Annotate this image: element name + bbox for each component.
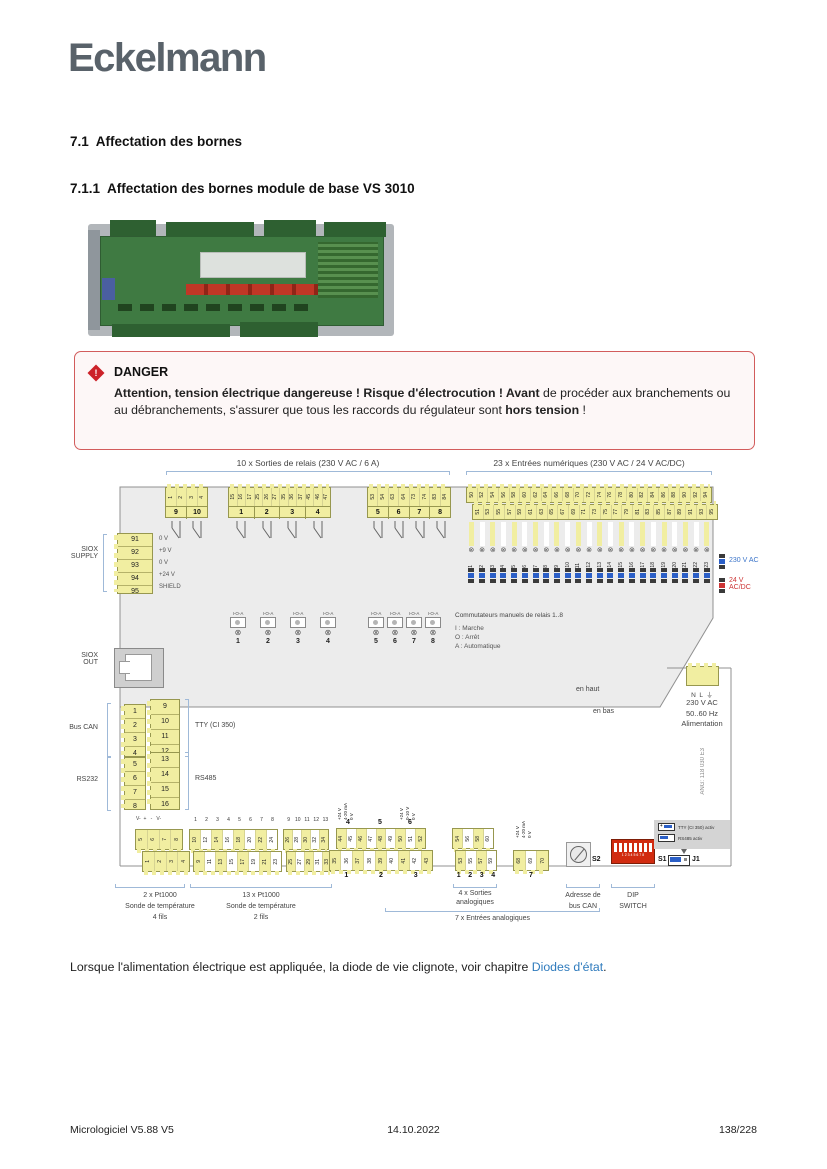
- terminal-number: 53: [485, 509, 491, 515]
- terminal-number: 80: [629, 492, 635, 498]
- relay-manual-switch: I-O-A ⊗ 6: [387, 611, 403, 645]
- output-number: 2: [465, 872, 477, 879]
- housing-left-cap: [88, 230, 100, 330]
- relay-manual-switch: I-O-A ⊗ 2: [260, 611, 276, 645]
- switch-number: 2: [266, 638, 270, 645]
- terminal-number: 28: [294, 837, 300, 843]
- terminal-number: 31: [315, 859, 321, 865]
- relay-group-numbers: 1234: [229, 506, 330, 519]
- jumper-icon: [719, 554, 725, 569]
- terminal-number: 36: [344, 858, 350, 864]
- terminal-number: 41: [401, 858, 407, 864]
- channel-number: 22: [693, 555, 699, 568]
- channel-stripe: [672, 522, 677, 546]
- terminal-number: 54: [380, 494, 386, 500]
- digital-channel: ⊗ 20: [669, 522, 680, 584]
- terminal-number: 83: [645, 509, 651, 515]
- terminal-number: 3: [189, 496, 195, 499]
- relay-group: 3: [280, 507, 306, 519]
- digital-channel: ⊗ 16: [627, 522, 638, 584]
- terminal-number: 16: [151, 798, 179, 812]
- relay-terminal-block: 5354636473748384 5678: [367, 487, 451, 518]
- terminal-number: 27: [272, 494, 278, 500]
- terminal-number: 26: [264, 494, 270, 500]
- digital-channel: ⊗ 10: [562, 522, 573, 584]
- digital-channel: ⊗ 15: [616, 522, 627, 584]
- terminal-number: 72: [586, 492, 592, 498]
- terminal-number: 60: [485, 836, 491, 842]
- terminal-number: 63: [539, 509, 545, 515]
- digital-channel: ⊗ 19: [659, 522, 670, 584]
- terminal-number: 48: [378, 836, 384, 842]
- manual-switches-5-8: I-O-A ⊗ 5 I-O-A ⊗ 6 I-O-A ⊗ 7 I-O-A ⊗ 8: [368, 611, 441, 645]
- switch-knob-icon: [425, 617, 441, 628]
- terminal-number: 56: [465, 836, 471, 842]
- terminal-number: 77: [613, 509, 619, 515]
- switch-number: 1: [236, 638, 240, 645]
- pt1000-4wire-block-bottom: 1234: [142, 851, 190, 872]
- terminal-number: 34: [321, 837, 327, 843]
- pin-label: 4-20 mA: [343, 788, 348, 820]
- terminal-number: 11: [151, 730, 179, 745]
- relay-group: 2: [255, 507, 281, 519]
- terminal-number: 70: [540, 858, 546, 864]
- relay-group-numbers: 5678: [368, 506, 450, 519]
- terminal-number: 92: [118, 547, 152, 560]
- sensor-index: 6: [245, 817, 256, 823]
- terminal-number: 95: [709, 509, 715, 515]
- group-number: 2: [364, 872, 399, 879]
- led-icon: ⊗: [640, 546, 646, 555]
- terminal-number: 23: [273, 859, 279, 865]
- terminal-number: 2: [125, 719, 145, 733]
- digital-channel: ⊗ 6: [520, 522, 531, 584]
- led-icon: ⊗: [672, 546, 678, 555]
- digital-channel: ⊗ 9: [552, 522, 563, 584]
- channel-stripe: [469, 522, 474, 546]
- channel-number: 7: [533, 555, 539, 568]
- dip-numbers: 1 2 3 4 5 6 7 8: [612, 853, 654, 857]
- terminal-number: 39: [378, 858, 384, 864]
- terminal-number: 55: [468, 858, 474, 864]
- legend-line: I : Marche: [455, 624, 501, 633]
- terminal-number: 74: [422, 494, 428, 500]
- analog-output-block-bottom: 53555759: [455, 850, 497, 871]
- terminal-connector: [324, 222, 386, 237]
- footer-date: 14.10.2022: [0, 1124, 827, 1136]
- power-line: Alimentation: [666, 719, 738, 730]
- terminal-number: 36: [289, 494, 295, 500]
- channel-number: 17: [640, 555, 646, 568]
- terminal-number: 38: [367, 858, 373, 864]
- terminal-number: 70: [575, 492, 581, 498]
- pt2-sensor-index-row: 12345678: [190, 817, 278, 823]
- analog-input-block-top: 444546474849505152: [336, 828, 426, 849]
- arrow-down-icon: [681, 849, 687, 854]
- terminal-number: 3: [169, 860, 175, 863]
- ain6-number: 6: [399, 819, 421, 826]
- pin-label: +24 V: [337, 788, 342, 820]
- jumper-icon: [533, 568, 539, 583]
- digital-channel: ⊗ 3: [487, 522, 498, 584]
- relay-contact-icon: [388, 521, 409, 545]
- product-photo: [88, 220, 394, 339]
- led-icon: ⊗: [650, 546, 656, 555]
- terminal-number: 17: [240, 859, 246, 865]
- pt4-bracket: [115, 884, 185, 888]
- danger-plain: !: [579, 403, 586, 417]
- switch-legend-title: Commutateurs manuels de relais 1..8: [455, 612, 563, 619]
- switch-knob-icon: [387, 617, 403, 628]
- siox-supply-bracket: [103, 534, 107, 592]
- terminal-number: 6: [150, 838, 156, 841]
- channel-number: 10: [565, 555, 571, 568]
- terminal-number: 53: [458, 858, 464, 864]
- led-icon: ⊗: [490, 546, 496, 555]
- pt4-pin-header: V- + - V-: [136, 816, 161, 822]
- terminal-number: 59: [488, 858, 494, 864]
- chip-row: [118, 304, 308, 311]
- can-terminal-block: 1234: [124, 704, 146, 757]
- en-bas-label: en bas: [593, 708, 614, 715]
- pin-label: +24 V: [159, 569, 181, 581]
- ain4-number: 4: [337, 819, 359, 826]
- terminal-number: 93: [118, 560, 152, 573]
- led-icon: ⊗: [522, 546, 528, 555]
- blue-connector: [102, 278, 115, 300]
- rs485-bracket: [185, 752, 189, 810]
- rs485-label: RS485: [195, 775, 216, 782]
- led-icon: ⊗: [543, 546, 549, 555]
- manual-page: Eckelmann 7.1 Affectation des bornes 7.1…: [0, 0, 827, 1169]
- terminal-number: 16: [225, 837, 231, 843]
- led-icon: ⊗: [325, 628, 332, 638]
- power-line: 230 V AC: [666, 698, 738, 709]
- channel-stripe: [565, 522, 570, 546]
- jumper-icon: [629, 568, 635, 583]
- rs485-terminal-block: 13141516: [150, 752, 180, 810]
- terminal-number: 57: [507, 509, 513, 515]
- channel-number: 2: [479, 555, 485, 568]
- terminal-number: 26: [285, 837, 291, 843]
- channel-number: 15: [618, 555, 624, 568]
- pin-label: +9 V: [159, 545, 181, 557]
- terminal-number: 21: [262, 859, 268, 865]
- terminal-numbers: 5354636473748384: [368, 488, 450, 506]
- diodes-etat-link[interactable]: Diodes d'état: [532, 960, 603, 974]
- pin-label: 0 V: [159, 533, 181, 545]
- jumper-icon: +: [658, 823, 675, 831]
- sensor-index: 11: [302, 817, 311, 823]
- jumper-icon: [511, 568, 517, 583]
- led-icon: ⊗: [629, 546, 635, 555]
- terminal-number: 74: [597, 492, 603, 498]
- relay-contact-icon: [430, 521, 451, 545]
- aout-caption: 4 x Sortiesanalogiques: [432, 889, 518, 907]
- terminal-number: 66: [554, 492, 560, 498]
- switch-number: 6: [393, 638, 397, 645]
- channel-number: 6: [522, 555, 528, 568]
- terminal-number: 58: [475, 836, 481, 842]
- channel-stripe: [608, 522, 613, 546]
- led-icon: ⊗: [265, 628, 272, 638]
- addr-bracket: [566, 884, 600, 888]
- digital-channel: ⊗ 11: [573, 522, 584, 584]
- power-terminal-block: [686, 666, 719, 686]
- relay-symbols: [367, 521, 451, 545]
- danger-box: ! DANGER Attention, tension électrique d…: [74, 351, 755, 450]
- dip-switch: 1 2 3 4 5 6 7 8: [611, 839, 655, 864]
- terminal-number: 29: [306, 859, 312, 865]
- siox-supply-pins: 0 V+9 V0 V+24 VSHIELD: [159, 533, 181, 593]
- relay-group: 6: [389, 507, 410, 519]
- caption-line: 4 x Sorties: [432, 889, 518, 898]
- jumper-icon: [704, 568, 710, 583]
- terminal-number: 37: [355, 858, 361, 864]
- j1-jumper-icon: [668, 855, 690, 866]
- jumper-legend-box: +TTY (CI 350) activ RS485 activ: [654, 820, 730, 849]
- pin-label: 0 V: [411, 788, 416, 820]
- terminal-number: 25: [288, 859, 294, 865]
- pt2-sensor-index-row: 910111213: [284, 817, 330, 823]
- led-icon: ⊗: [693, 546, 699, 555]
- relay-group: 5: [368, 507, 389, 519]
- terminal-number: 52: [479, 492, 485, 498]
- terminal-number: 64: [401, 494, 407, 500]
- terminal-number: 67: [560, 509, 566, 515]
- terminal-number: 54: [455, 836, 461, 842]
- jumper-icon: [575, 568, 581, 583]
- jumper-icon: [618, 568, 624, 583]
- terminal-number: 89: [677, 509, 683, 515]
- relay-manual-switch: I-O-A ⊗ 8: [425, 611, 441, 645]
- caption-line: 2 fils: [188, 912, 334, 923]
- jumper-icon: [661, 568, 667, 583]
- terminal-number: 1: [145, 860, 151, 863]
- terminal-number: 92: [693, 492, 699, 498]
- io-pin-field: [318, 242, 378, 298]
- switch-knob-icon: [406, 617, 422, 628]
- jumper-icon: [479, 568, 485, 583]
- terminal-number: 51: [408, 836, 414, 842]
- switch-number: 4: [326, 638, 330, 645]
- digital-channel: ⊗ 14: [605, 522, 616, 584]
- channel-stripe: [587, 522, 592, 546]
- relay-manual-switch: I-O-A ⊗ 1: [230, 611, 246, 645]
- s1-label: S1: [658, 856, 667, 863]
- switch-mode-label: I-O-A: [371, 611, 382, 616]
- output-number: 4: [488, 872, 500, 879]
- j1-label: J1: [692, 856, 700, 863]
- sensor-index: 12: [312, 817, 321, 823]
- caption-line: Sonde de température: [188, 901, 334, 912]
- terminal-number: 6: [125, 772, 145, 786]
- danger-bold: Attention, tension électrique dangereuse…: [114, 386, 540, 400]
- led-icon: ⊗: [597, 546, 603, 555]
- siox-out-connector: [114, 648, 164, 688]
- led-icon: ⊗: [392, 628, 399, 638]
- pt1000-2wire-block-b-bottom: 2527293133: [286, 851, 332, 872]
- manual-switches-1-4: I-O-A ⊗ 1 I-O-A ⊗ 2 I-O-A ⊗ 3 I-O-A ⊗ 4: [230, 611, 336, 645]
- tty-bracket: [185, 699, 189, 757]
- terminal-number: 4: [199, 496, 205, 499]
- switch-knob-icon: [320, 617, 336, 628]
- led-icon: ⊗: [501, 546, 507, 555]
- relay-group: 4: [306, 507, 331, 519]
- jumper-icon: [719, 578, 725, 593]
- relay-group: 9: [166, 507, 187, 519]
- relay-group: 1: [229, 507, 255, 519]
- ain7-number: 7: [513, 872, 549, 879]
- group-number: 1: [329, 872, 364, 879]
- sensor-index: 4: [223, 817, 234, 823]
- jumper-icon: [672, 568, 678, 583]
- switch-mode-label: I-O-A: [323, 611, 334, 616]
- body-paragraph: Lorsque l'alimentation électrique est ap…: [70, 960, 760, 974]
- relay-symbols: [228, 521, 331, 545]
- terminal-number: 47: [368, 836, 374, 842]
- digital-channel: ⊗ 7: [530, 522, 541, 584]
- terminal-number: 56: [501, 492, 507, 498]
- terminal-number: 13: [151, 753, 179, 768]
- sensor-index: 10: [293, 817, 302, 823]
- terminal-number: 84: [442, 494, 448, 500]
- terminal-connector: [166, 222, 254, 237]
- terminal-number: 90: [682, 492, 688, 498]
- terminal-number: 19: [251, 859, 257, 865]
- terminal-number: 84: [650, 492, 656, 498]
- jumper-legend-rs485: RS485 activ: [658, 834, 730, 842]
- terminal-number: 51: [475, 509, 481, 515]
- terminal-number: 43: [424, 858, 430, 864]
- caption-line: analogiques: [432, 898, 518, 907]
- channel-stripe: [544, 522, 549, 546]
- danger-title: DANGER: [114, 365, 168, 379]
- terminal-number: 7: [162, 838, 168, 841]
- terminal-number: 2: [157, 860, 163, 863]
- channel-stripe: [512, 522, 517, 546]
- terminal-number: 4: [181, 860, 187, 863]
- terminal-number: 49: [388, 836, 394, 842]
- terminal-numbers: 151617252627353637454647: [229, 488, 330, 506]
- voltage-24-label: 24 VAC/DC: [729, 577, 751, 591]
- terminal-number: 94: [118, 573, 152, 586]
- sensor-index: 8: [267, 817, 278, 823]
- relay-terminal-block: 1234 910: [165, 487, 208, 518]
- pin-label: 0 V: [159, 557, 181, 569]
- voltage-230-label: 230 V AC: [729, 557, 759, 564]
- jumper-icon: [640, 568, 646, 583]
- terminal-number: 69: [571, 509, 577, 515]
- rs232-terminal-block: 5678: [124, 757, 146, 810]
- channel-number: 21: [682, 555, 688, 568]
- terminal-number: 11: [207, 859, 213, 864]
- jumper-icon: [658, 834, 675, 842]
- relay-contact-icon: [228, 521, 254, 545]
- rs232-label: RS232: [50, 776, 98, 783]
- jumper-icon: [650, 568, 656, 583]
- channel-number: 8: [543, 555, 549, 568]
- digital-input-channels: ⊗ 1 ⊗ 2 ⊗ 3 ⊗ 4 ⊗ 5: [466, 522, 712, 584]
- siox-out-label: SIOXOUT: [58, 652, 98, 666]
- channel-stripe: [554, 522, 559, 546]
- channel-stripe: [662, 522, 667, 546]
- ain7-pin-labels: +24 V4-20 mA0 V: [515, 806, 532, 838]
- jumper-icon: [522, 568, 528, 583]
- relay-contact-icon: [187, 521, 209, 545]
- terminal-number: 1: [168, 496, 174, 499]
- digital-section-label: 23 x Entrées numériques (230 V AC / 24 V…: [466, 458, 712, 468]
- switch-mode-label: I-O-A: [428, 611, 439, 616]
- terminal-number: 93: [699, 509, 705, 515]
- switch-knob-icon: [368, 617, 384, 628]
- caption-line: 13 x Pt1000: [188, 890, 334, 901]
- digital-channel: ⊗ 13: [594, 522, 605, 584]
- led-icon: ⊗: [586, 546, 592, 555]
- terminal-number: 91: [688, 509, 694, 515]
- terminal-number: 8: [125, 800, 145, 813]
- terminal-number: 50: [469, 492, 475, 498]
- ain-group-numbers: 123: [329, 872, 433, 879]
- relay-group: 8: [430, 507, 450, 519]
- sensor-index: 7: [256, 817, 267, 823]
- section-heading: 7.1 Affectation des bornes: [70, 134, 242, 149]
- terminal-number: 25: [255, 494, 261, 500]
- bus-can-label: Bus CAN: [50, 724, 98, 731]
- channel-stripe: [629, 522, 634, 546]
- terminal-number: 59: [517, 509, 523, 515]
- terminal-number: 71: [581, 509, 587, 515]
- switch-number: 8: [431, 638, 435, 645]
- pt2-caption: 13 x Pt1000Sonde de température2 fils: [188, 890, 334, 923]
- pt1000-2wire-block-b-top: 2628303234: [283, 829, 329, 850]
- siox-supply-block: 9192939495: [117, 533, 153, 594]
- switch-number: 7: [412, 638, 416, 645]
- legend-line: O : Arrêt: [455, 633, 501, 642]
- analog-input-block-bottom: 353637383940414243: [329, 850, 433, 871]
- terminal-number: 35: [281, 494, 287, 500]
- led-icon: ⊗: [682, 546, 688, 555]
- terminal-number: 65: [549, 509, 555, 515]
- rs232-bracket: [107, 756, 111, 811]
- aout-bracket: [453, 884, 497, 888]
- sensor-index: 3: [212, 817, 223, 823]
- terminal-number: 62: [533, 492, 539, 498]
- output-number: 1: [453, 872, 465, 879]
- sensor-index: 9: [284, 817, 293, 823]
- switch-number: 5: [374, 638, 378, 645]
- dip-caption: DIPSWITCH: [589, 890, 677, 912]
- led-icon: ⊗: [575, 546, 581, 555]
- channel-number: 9: [554, 555, 560, 568]
- en-haut-label: en haut: [576, 686, 599, 693]
- dip-pips: [612, 843, 654, 852]
- terminal-number: 10: [192, 837, 198, 843]
- switch-mode-label: I-O-A: [409, 611, 420, 616]
- terminal-number: 73: [411, 494, 417, 500]
- terminal-number: 76: [607, 492, 613, 498]
- relay-section-label: 10 x Sorties de relais (230 V AC / 6 A): [166, 458, 450, 468]
- tty-terminal-block: 9101112: [150, 699, 180, 757]
- terminal-number: 47: [323, 494, 329, 500]
- pin-label: 0 V: [349, 788, 354, 820]
- switch-mode-label: I-O-A: [233, 611, 244, 616]
- terminal-number: 87: [667, 509, 673, 515]
- caption-line: SWITCH: [589, 901, 677, 912]
- channel-stripe: [576, 522, 581, 546]
- relay-contact-icon: [280, 521, 306, 545]
- terminal-number: 81: [635, 509, 641, 515]
